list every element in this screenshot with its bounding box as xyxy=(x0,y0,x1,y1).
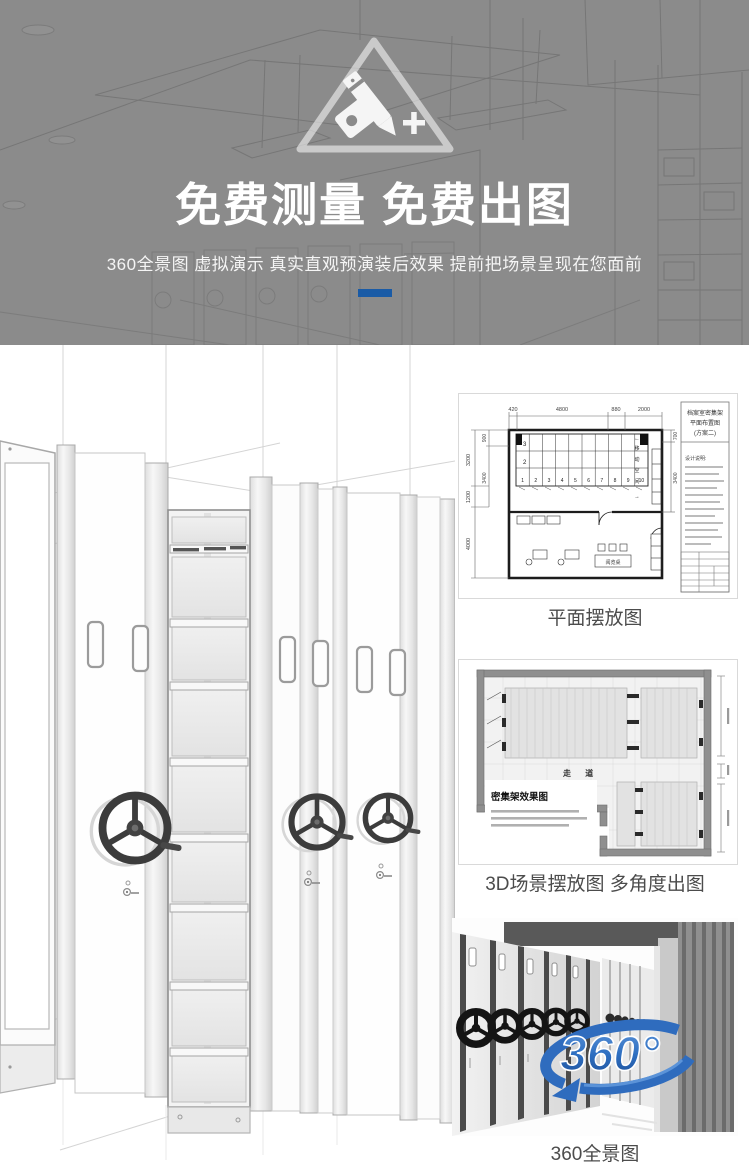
panorama-render: 360° xyxy=(452,918,738,1136)
accent-bar xyxy=(358,289,392,297)
caption-3d-layout: 3D场景摆放图 多角度出图 xyxy=(452,869,738,896)
svg-text:4800: 4800 xyxy=(556,407,568,413)
svg-text:3400: 3400 xyxy=(673,472,679,483)
triangle-outline xyxy=(300,41,450,149)
svg-text:密集架效果图: 密集架效果图 xyxy=(490,791,548,803)
floor-plan-drawing: 档案室密集架 平面布置图 (方案二) 设计说明: xyxy=(459,394,737,598)
svg-text:平面布置图: 平面布置图 xyxy=(690,419,720,427)
pencil-card-icon xyxy=(319,71,425,156)
svg-text:1: 1 xyxy=(521,478,524,484)
aisle-label: 走 道 xyxy=(562,768,599,778)
caption-360-panorama: 360全景图 xyxy=(452,1139,738,1165)
info-box: 密集架效果图 xyxy=(485,780,597,848)
hero-banner: 免费测量 免费出图 360全景图 虚拟演示 真实直观预演装后效果 提前把场景呈现… xyxy=(0,0,749,345)
cabinet-left xyxy=(0,441,55,1093)
svg-text:空: 空 xyxy=(634,467,639,474)
figure-3d-layout: 走 道 密集架效果图 xyxy=(458,659,738,865)
measure-drawing-badge-icon xyxy=(292,34,457,156)
svg-text:6: 6 xyxy=(587,478,590,484)
figure-360-panorama: 360° xyxy=(452,918,738,1136)
svg-text:7: 7 xyxy=(600,478,603,484)
svg-text:动: 动 xyxy=(634,456,639,463)
open-shelf-bay xyxy=(168,510,250,1133)
arrow-left: ← xyxy=(634,436,640,442)
svg-text:设计说明:: 设计说明: xyxy=(685,455,706,462)
svg-text:880: 880 xyxy=(611,407,620,413)
svg-text:阅览桌: 阅览桌 xyxy=(605,559,620,566)
svg-text:3200: 3200 xyxy=(466,454,472,466)
svg-text:2000: 2000 xyxy=(638,407,650,413)
svg-text:4000: 4000 xyxy=(466,538,472,550)
svg-text:8: 8 xyxy=(614,478,617,484)
svg-text:900: 900 xyxy=(482,434,488,443)
banner-subheading: 360全景图 虚拟演示 真实直观预演装后效果 提前把场景呈现在您面前 xyxy=(0,250,749,275)
banner-heading: 免费测量 免费出图 xyxy=(0,180,749,231)
svg-text:间: 间 xyxy=(634,478,639,485)
svg-text:9: 9 xyxy=(627,478,630,484)
svg-text:2: 2 xyxy=(534,478,537,484)
svg-text:4: 4 xyxy=(561,478,564,484)
svg-text:3: 3 xyxy=(548,478,551,484)
figure-floor-plan: 档案室密集架 平面布置图 (方案二) 设计说明: xyxy=(458,393,738,599)
svg-text:档案室密集架: 档案室密集架 xyxy=(687,409,723,417)
shelving-sketch-illustration xyxy=(0,345,455,1165)
svg-text:360°: 360° xyxy=(560,1028,660,1081)
svg-text:420: 420 xyxy=(508,407,517,413)
content-section: 档案室密集架 平面布置图 (方案二) 设计说明: xyxy=(0,345,749,1165)
svg-text:1200: 1200 xyxy=(466,491,472,503)
caption-floor-plan: 平面摆放图 xyxy=(452,603,738,630)
svg-text:(方案二): (方案二) xyxy=(694,429,716,437)
product-detail-page: 免费测量 免费出图 360全景图 虚拟演示 真实直观预演装后效果 提前把场景呈现… xyxy=(0,0,749,1165)
svg-text:5: 5 xyxy=(574,478,577,484)
svg-text:700: 700 xyxy=(673,432,679,441)
svg-text:3400: 3400 xyxy=(482,472,488,483)
svg-text:移: 移 xyxy=(634,445,639,452)
scene-layout-drawing: 走 道 密集架效果图 xyxy=(459,660,737,864)
arrow-right: → xyxy=(634,494,640,500)
